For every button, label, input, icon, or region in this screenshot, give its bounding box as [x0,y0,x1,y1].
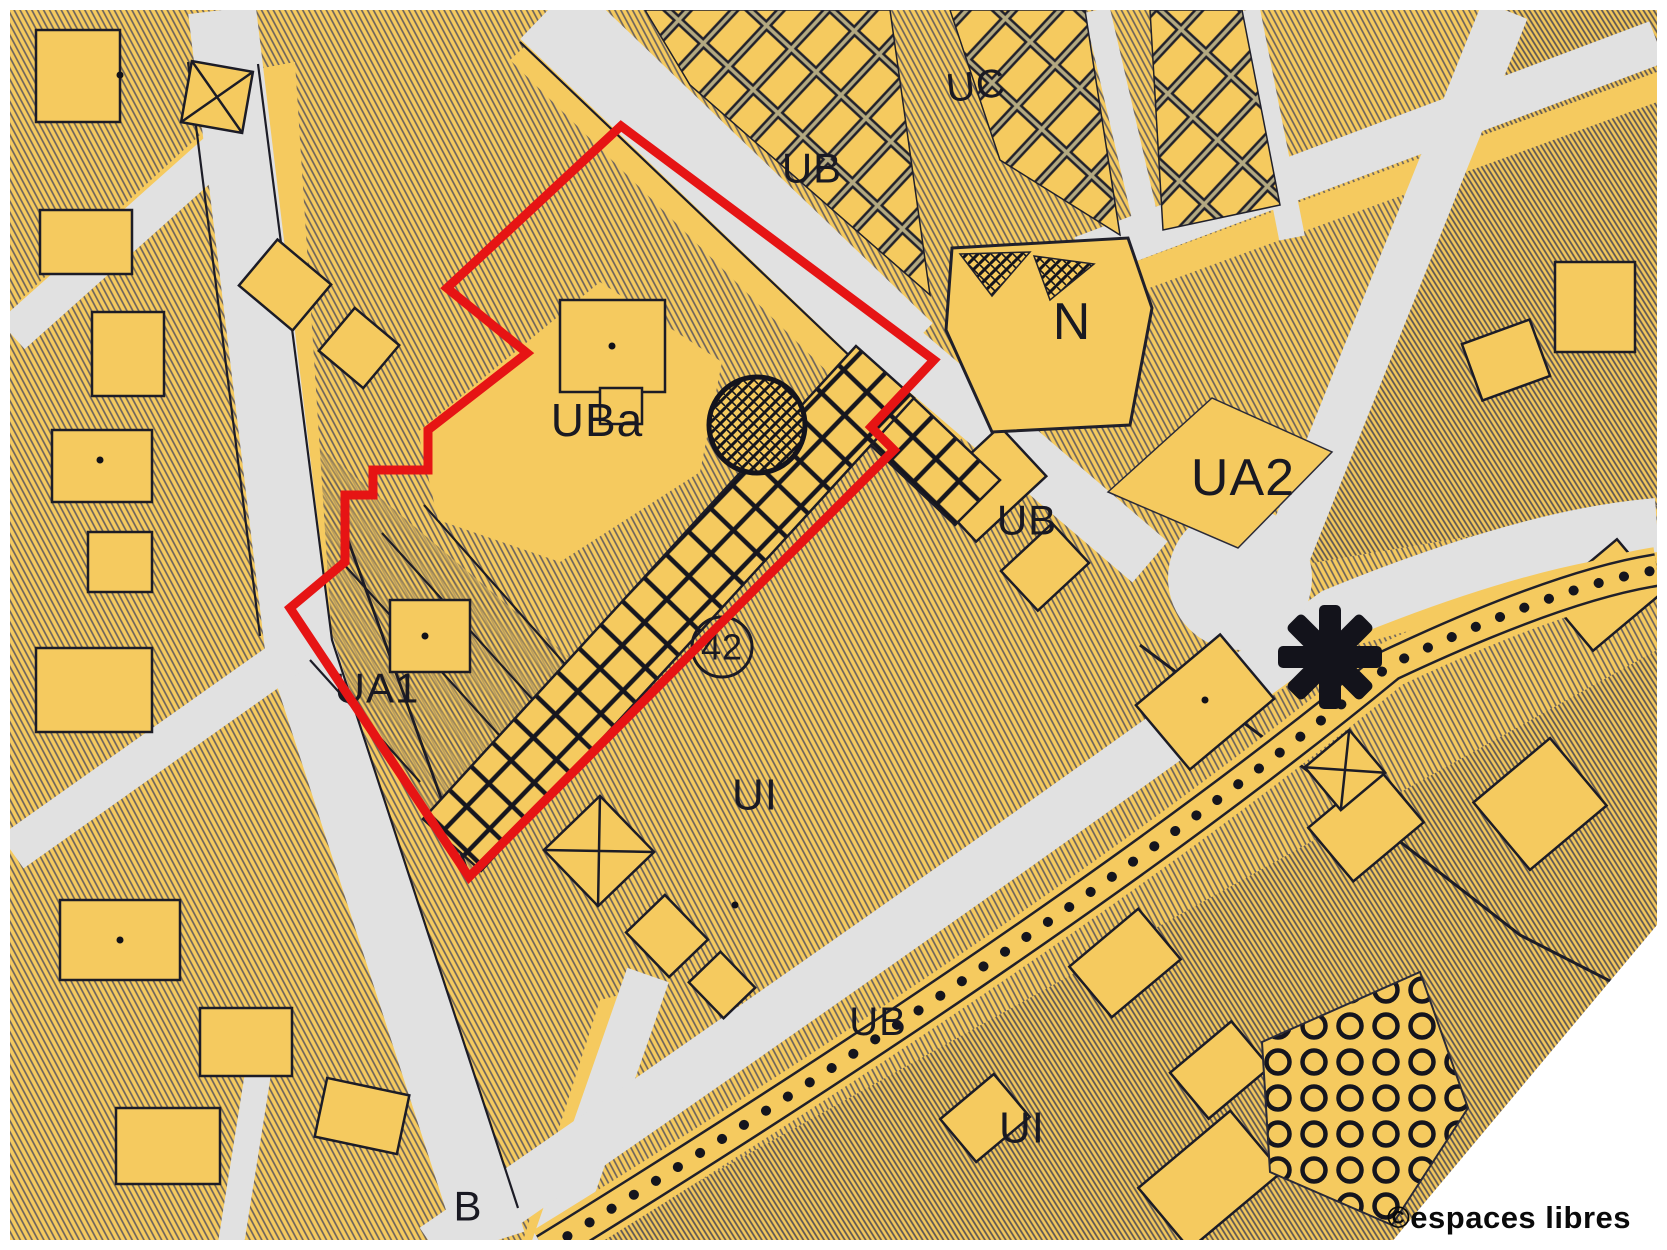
zone-label-ua2: UA2 [1191,449,1295,507]
zoning-map-screenshot: UCUBNUA2UBUBaUA142UIUBUIB ©espaces libre… [0,0,1667,1250]
star-marker-icon [1278,605,1382,709]
zone-label-n: N [1053,293,1092,351]
watermark: ©espaces libres [1387,1200,1631,1236]
zone-label-ub: UB [997,497,1057,544]
zone-label-ub: UB [782,145,842,192]
zone-label-b: B [453,1183,482,1230]
monument-circle-icon [709,377,805,473]
zone-label-ui: UI [999,1104,1045,1153]
zoning-map: UCUBNUA2UBUBaUA142UIUBUIB [0,0,1667,1250]
zone-label-ui: UI [732,771,778,820]
zone-label-ub: UB [849,1000,907,1044]
zone-label-uc: UC [944,61,1008,111]
zone-label-uba: UBa [551,394,643,446]
